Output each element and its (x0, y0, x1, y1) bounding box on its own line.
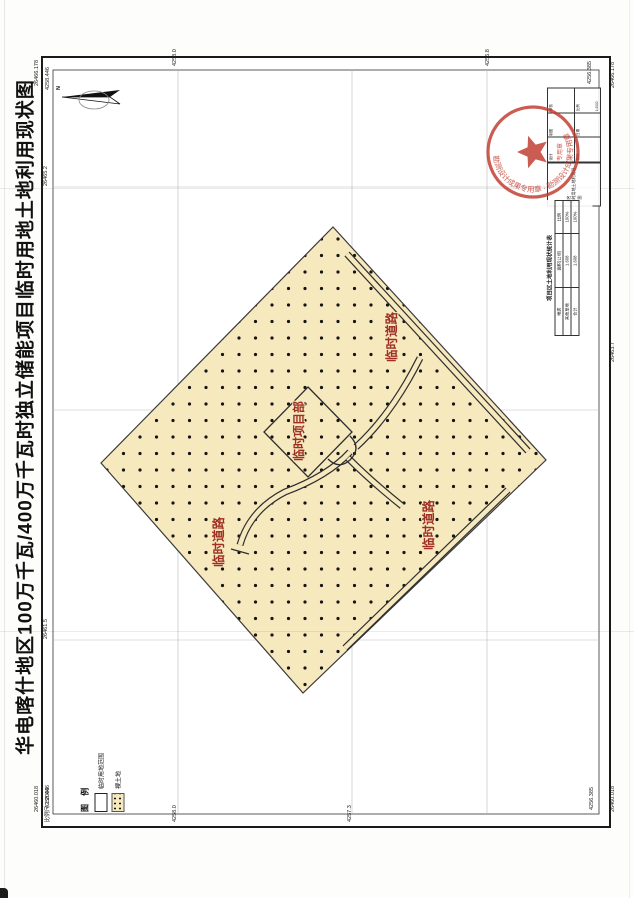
coord-br-b: 26460.018 (610, 786, 616, 812)
road-label-sw: 临时道路 (211, 517, 226, 568)
tb-cell-value: 1:2000 (595, 89, 599, 111)
summary-cell: 合计 (571, 288, 579, 336)
road-label-ne: 临时道路 (384, 312, 399, 363)
tick-top-2: 4256.8 (485, 49, 491, 66)
seal-center-text: 专用章 (556, 143, 564, 161)
summary-cell: 其他草地 (563, 288, 571, 336)
summary-row: 合计 1.608 100% (571, 201, 579, 336)
legend-swatch-boundary (94, 793, 107, 812)
north-n-label: N (56, 86, 62, 90)
legend-title: 图 例 (79, 740, 90, 812)
tick-right-1: 26463.7 (610, 342, 616, 362)
coord-tr-b: 26466.178 (610, 62, 616, 88)
scan-edge-smudge (4, 0, 5, 898)
tick-bottom-1: 4257.3 (347, 805, 353, 822)
summary-header-row: 地类 面积(公顷) 比例 (555, 201, 563, 336)
tick-left-1: 26465.2 (43, 166, 49, 186)
coord-bl-a: 26460.018 (34, 786, 40, 812)
coord-br-a: 4256.385 (589, 787, 595, 810)
road-label-se: 临时道路 (421, 500, 436, 551)
scan-edge-smudge (629, 0, 630, 898)
red-seal: 勘测设计成果专用章 · 勘测设计成果专用章 专用章 (476, 95, 590, 209)
scale-note: 比例尺 1:2000 (41, 782, 53, 828)
site-label: 临时项目部 (291, 401, 306, 461)
scale-note-text: 比例尺 1:2000 (43, 788, 51, 823)
scanned-map-sheet: 华电喀什地区100万千瓦/400万千瓦时独立储能项目临时用地土地利用现状图 (0, 0, 634, 898)
coord-tr-a: 4256.385 (587, 61, 593, 84)
summary-cell: 1.608 (571, 234, 579, 288)
summary-table-title: 项目区土地利用现状统计表 (545, 200, 553, 336)
coord-tl-a: 26466.178 (34, 60, 40, 86)
scan-corner-mark (0, 888, 8, 898)
legend-swatch-bareland (111, 793, 124, 812)
legend-item-bareland: 裸土地 (111, 740, 124, 812)
legend-label-boundary: 临时用地范围 (96, 753, 105, 789)
tick-left-2: 26461.5 (43, 619, 49, 639)
summary-cell: 1.608 (563, 234, 571, 288)
seal-star-icon (517, 136, 547, 168)
summary-table: 地类 面积(公顷) 比例 其他草地 1.608 100% 合计 1.608 10… (554, 200, 579, 336)
landuse-summary-table: 项目区土地利用现状统计表 地类 面积(公顷) 比例 其他草地 1.608 100… (545, 200, 592, 336)
summary-row: 其他草地 1.608 100% (563, 201, 571, 336)
legend-item-boundary: 临时用地范围 (94, 740, 107, 812)
summary-header: 地类 (555, 288, 563, 336)
summary-header: 面积(公顷) (555, 234, 563, 288)
coord-tl-b: 4258.446 (45, 67, 51, 90)
tick-bottom-2: 4258.0 (172, 805, 178, 822)
legend-label-bareland: 裸土地 (113, 771, 122, 789)
tick-top-1: 4258.0 (172, 49, 178, 66)
legend: 图 例 临时用地范围 裸土地 (58, 740, 145, 812)
